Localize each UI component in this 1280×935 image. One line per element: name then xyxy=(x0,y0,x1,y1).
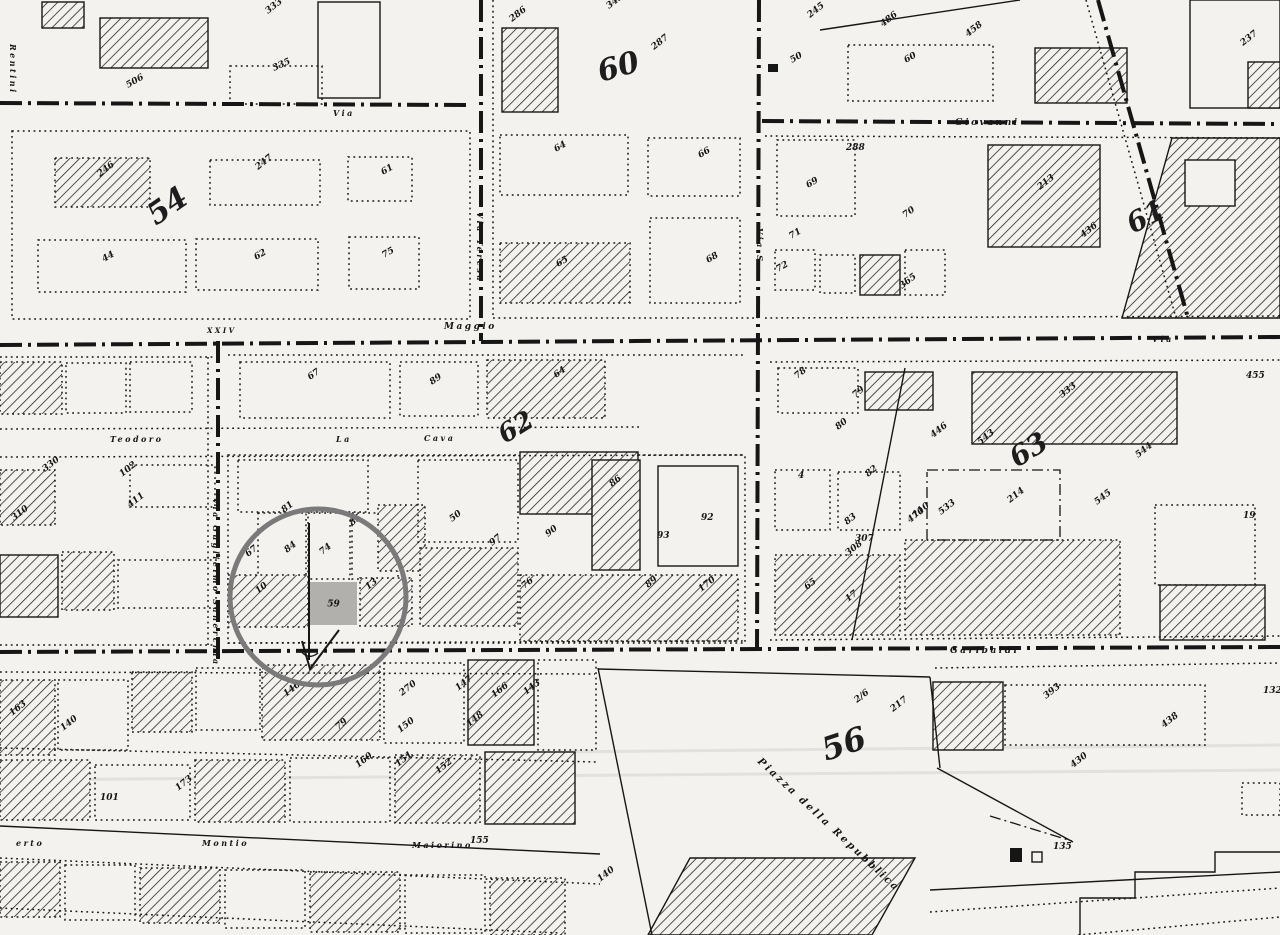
street-label: Giovanni xyxy=(955,118,1020,128)
building xyxy=(42,2,84,28)
parcel-number: 101 xyxy=(100,793,119,803)
building xyxy=(0,362,62,414)
building xyxy=(775,555,900,635)
highlighted-parcel-number: 59 xyxy=(327,600,340,610)
street-label: XXIV xyxy=(206,326,237,335)
building xyxy=(1185,160,1235,206)
building xyxy=(0,470,55,525)
building xyxy=(972,372,1177,444)
street-label: Via xyxy=(1152,334,1174,344)
building xyxy=(0,862,60,917)
building xyxy=(485,752,575,824)
parcel-number: 19 xyxy=(1243,511,1256,521)
building xyxy=(905,540,1120,635)
parcel-number: 455 xyxy=(1246,371,1265,381)
parcel-number: 4 xyxy=(798,471,804,481)
parcel-number: 288 xyxy=(845,143,866,153)
building xyxy=(502,28,558,112)
building xyxy=(933,682,1003,750)
street-label: Via Teresa xyxy=(475,212,485,283)
building xyxy=(490,878,565,935)
building xyxy=(500,243,630,303)
building xyxy=(420,548,518,626)
parcel-number: 132 xyxy=(1263,686,1280,696)
street-label: Rentini xyxy=(8,43,18,95)
street-label: Maggio xyxy=(443,322,497,332)
parcel-number: 92 xyxy=(701,513,714,523)
street-label: La xyxy=(335,434,352,444)
street-label: erto xyxy=(16,838,44,848)
street-label: Via S. xyxy=(755,228,765,268)
street-label: Maiorino xyxy=(411,840,473,850)
street-label: Via xyxy=(333,108,355,118)
building xyxy=(768,64,778,72)
building xyxy=(487,360,605,418)
street-label: Montio xyxy=(201,838,249,848)
building xyxy=(195,760,285,822)
building xyxy=(860,255,900,295)
building xyxy=(0,555,58,617)
building xyxy=(468,660,534,745)
building xyxy=(0,760,90,820)
building xyxy=(1160,585,1265,640)
building xyxy=(865,372,933,410)
street-label: Cava xyxy=(424,433,455,443)
map-viewport: 3335063352863432872454864585060237646665… xyxy=(0,0,1280,935)
building xyxy=(1155,505,1255,585)
street-label: Teodoro xyxy=(110,434,163,444)
cadastral-map-canvas: 3335063352863432872454864585060237646665… xyxy=(0,0,1280,935)
building xyxy=(1248,62,1280,108)
building xyxy=(100,18,208,68)
building xyxy=(62,552,114,610)
building xyxy=(132,672,192,732)
building xyxy=(658,466,738,566)
parcel-number: 135 xyxy=(1053,842,1072,852)
building xyxy=(310,872,400,932)
parcel-number: 93 xyxy=(657,531,670,541)
building xyxy=(1010,848,1022,862)
street-label: Garibaldi xyxy=(950,646,1019,656)
building xyxy=(0,680,55,755)
street-label: Via Guglielmo Sanerchia xyxy=(211,498,221,667)
building xyxy=(228,575,308,627)
